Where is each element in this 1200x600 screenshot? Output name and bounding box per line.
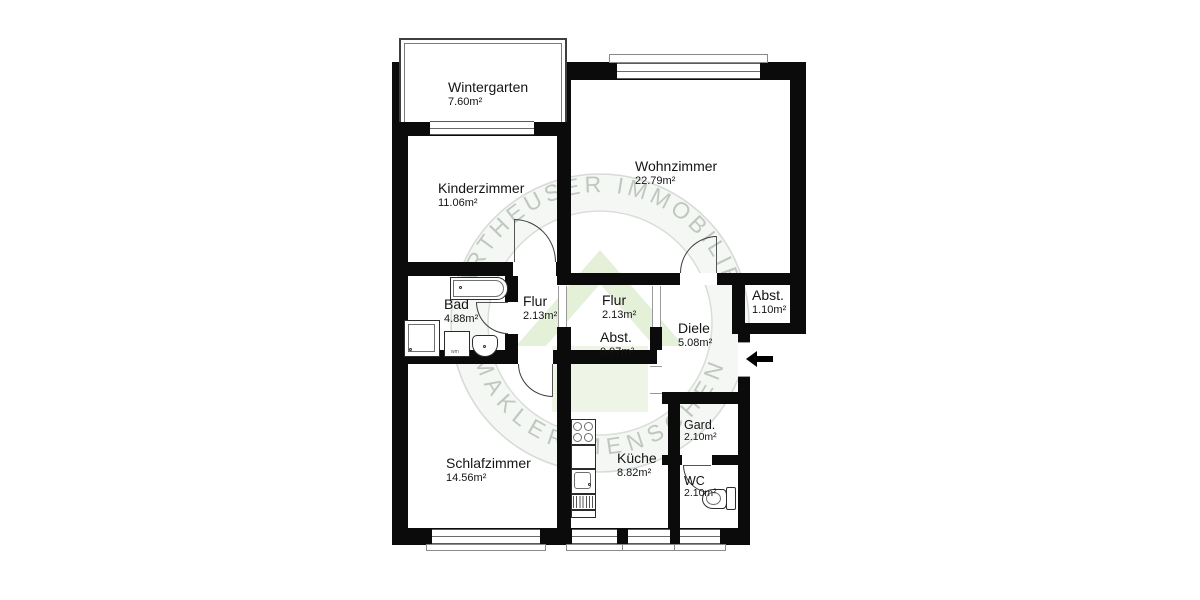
room-name: Flur xyxy=(602,293,636,309)
shower-drain xyxy=(409,348,412,351)
window-kueche-1 xyxy=(572,529,617,544)
kitchen-counter-end xyxy=(571,510,596,518)
window-schlafzimmer xyxy=(432,529,540,544)
window-sill-wohnzimmer xyxy=(609,54,768,63)
wall-flur-stub-left xyxy=(557,327,571,350)
bathtub-drain xyxy=(459,286,462,289)
room-area: 8.82m² xyxy=(617,467,657,479)
room-label-diele: Diele 5.08m² xyxy=(678,321,712,349)
room-name: Wintergarten xyxy=(448,80,528,96)
room-area: 1.10m² xyxy=(752,304,786,316)
kitchen-sink-basin xyxy=(574,472,591,489)
kitchen-counter xyxy=(571,445,596,469)
room-label-bad: Bad 4.88m² xyxy=(444,297,478,325)
room-area: 5.08m² xyxy=(678,337,712,349)
room-area: 22.79m² xyxy=(635,175,717,187)
window-sill-schlafzimmer xyxy=(426,544,546,551)
room-name: Abst. xyxy=(600,330,634,346)
room-label-wc: WC 2.10m² xyxy=(684,474,717,500)
entrance-arrow-icon xyxy=(746,351,757,367)
room-label-abstellraum-eingang: Abst. 1.10m² xyxy=(752,288,786,316)
room-area: 2.10m² xyxy=(684,488,717,500)
window-wc xyxy=(680,529,720,544)
room-label-flur-links: Flur 2.13m² xyxy=(523,294,557,322)
room-name: Gard. xyxy=(684,418,717,432)
stove-burner-1 xyxy=(573,422,582,431)
room-label-garderobe: Gard. 2.10m² xyxy=(684,418,717,444)
bathroom-sink-drain xyxy=(483,345,486,348)
room-label-flur-rechts: Flur 2.13m² xyxy=(602,293,636,321)
wall-diele-abst xyxy=(732,285,745,323)
window-wohnzimmer xyxy=(617,63,760,79)
window-sill-kueche-1 xyxy=(566,544,623,551)
room-name: Schlafzimmer xyxy=(446,456,531,472)
room-name: Wohnzimmer xyxy=(635,159,717,175)
watermark-arc-top-textwrap: KARTHEUSER IMMOBILIEN xyxy=(0,0,747,292)
wall-outer-right-upper xyxy=(790,80,806,332)
room-name: Abst. xyxy=(752,288,786,304)
toilet-tank xyxy=(726,487,736,510)
room-area: 14.56m² xyxy=(446,472,531,484)
passage-flur-diele xyxy=(652,286,661,327)
room-area: 2.10m² xyxy=(684,432,717,444)
room-name: Küche xyxy=(617,451,657,467)
window-sill-wc xyxy=(674,544,726,551)
floor-plan: KARTHEUSER IMMOBILIEN MAKLER.MENSCHEN xyxy=(0,0,1200,600)
room-label-kueche: Küche 8.82m² xyxy=(617,451,657,479)
stove-burner-2 xyxy=(584,422,593,431)
passage-flur-links-rechts xyxy=(558,286,567,327)
stove-burner-4 xyxy=(584,433,593,442)
room-area: 11.06m² xyxy=(438,197,524,209)
room-label-kinderzimmer: Kinderzimmer 11.06m² xyxy=(438,181,524,209)
entrance-arrow-shaft xyxy=(757,356,773,362)
door-opening-schlafzimmer xyxy=(518,350,553,364)
door-opening-wohnzimmer xyxy=(680,273,717,285)
wall-entry-stub xyxy=(738,334,750,342)
room-area: 7.60m² xyxy=(448,96,528,108)
door-opening-kinderzimmer xyxy=(513,262,556,276)
passage-diele-kueche xyxy=(650,366,662,394)
kitchen-drainer-hatch xyxy=(573,496,594,508)
watermark-text-top: KARTHEUSER IMMOBILIEN xyxy=(0,0,747,292)
room-name: Flur xyxy=(523,294,557,310)
room-name: Diele xyxy=(678,321,712,337)
washing-machine-label: wm xyxy=(451,349,459,355)
wall-kueche-left xyxy=(557,364,571,528)
kitchen-sink-faucet xyxy=(588,483,591,486)
room-label-wintergarten: Wintergarten 7.60m² xyxy=(448,80,528,108)
wall-abst-bottom xyxy=(732,323,806,334)
room-area: 0.97m² xyxy=(600,346,634,358)
window-kueche-2 xyxy=(628,529,670,544)
wall-flur-stub-right xyxy=(650,327,662,350)
window-sill-kueche-2 xyxy=(622,544,676,551)
shower-inner xyxy=(408,324,435,352)
room-area: 4.88m² xyxy=(444,313,478,325)
door-opening-wc xyxy=(682,455,712,465)
wall-bad-right-lower xyxy=(505,334,518,350)
room-label-schlafzimmer: Schlafzimmer 14.56m² xyxy=(446,456,531,484)
window-wintergarten-kinderzimmer xyxy=(430,121,534,135)
room-name: Kinderzimmer xyxy=(438,181,524,197)
room-name: Bad xyxy=(444,297,478,313)
watermark: KARTHEUSER IMMOBILIEN MAKLER.MENSCHEN xyxy=(0,0,1200,600)
room-name: WC xyxy=(684,474,717,488)
room-label-wohnzimmer: Wohnzimmer 22.79m² xyxy=(635,159,717,187)
room-label-abstellraum-klein: Abst. 0.97m² xyxy=(600,330,634,358)
room-area: 2.13m² xyxy=(523,310,557,322)
stove-burner-3 xyxy=(573,433,582,442)
room-area: 2.13m² xyxy=(602,309,636,321)
